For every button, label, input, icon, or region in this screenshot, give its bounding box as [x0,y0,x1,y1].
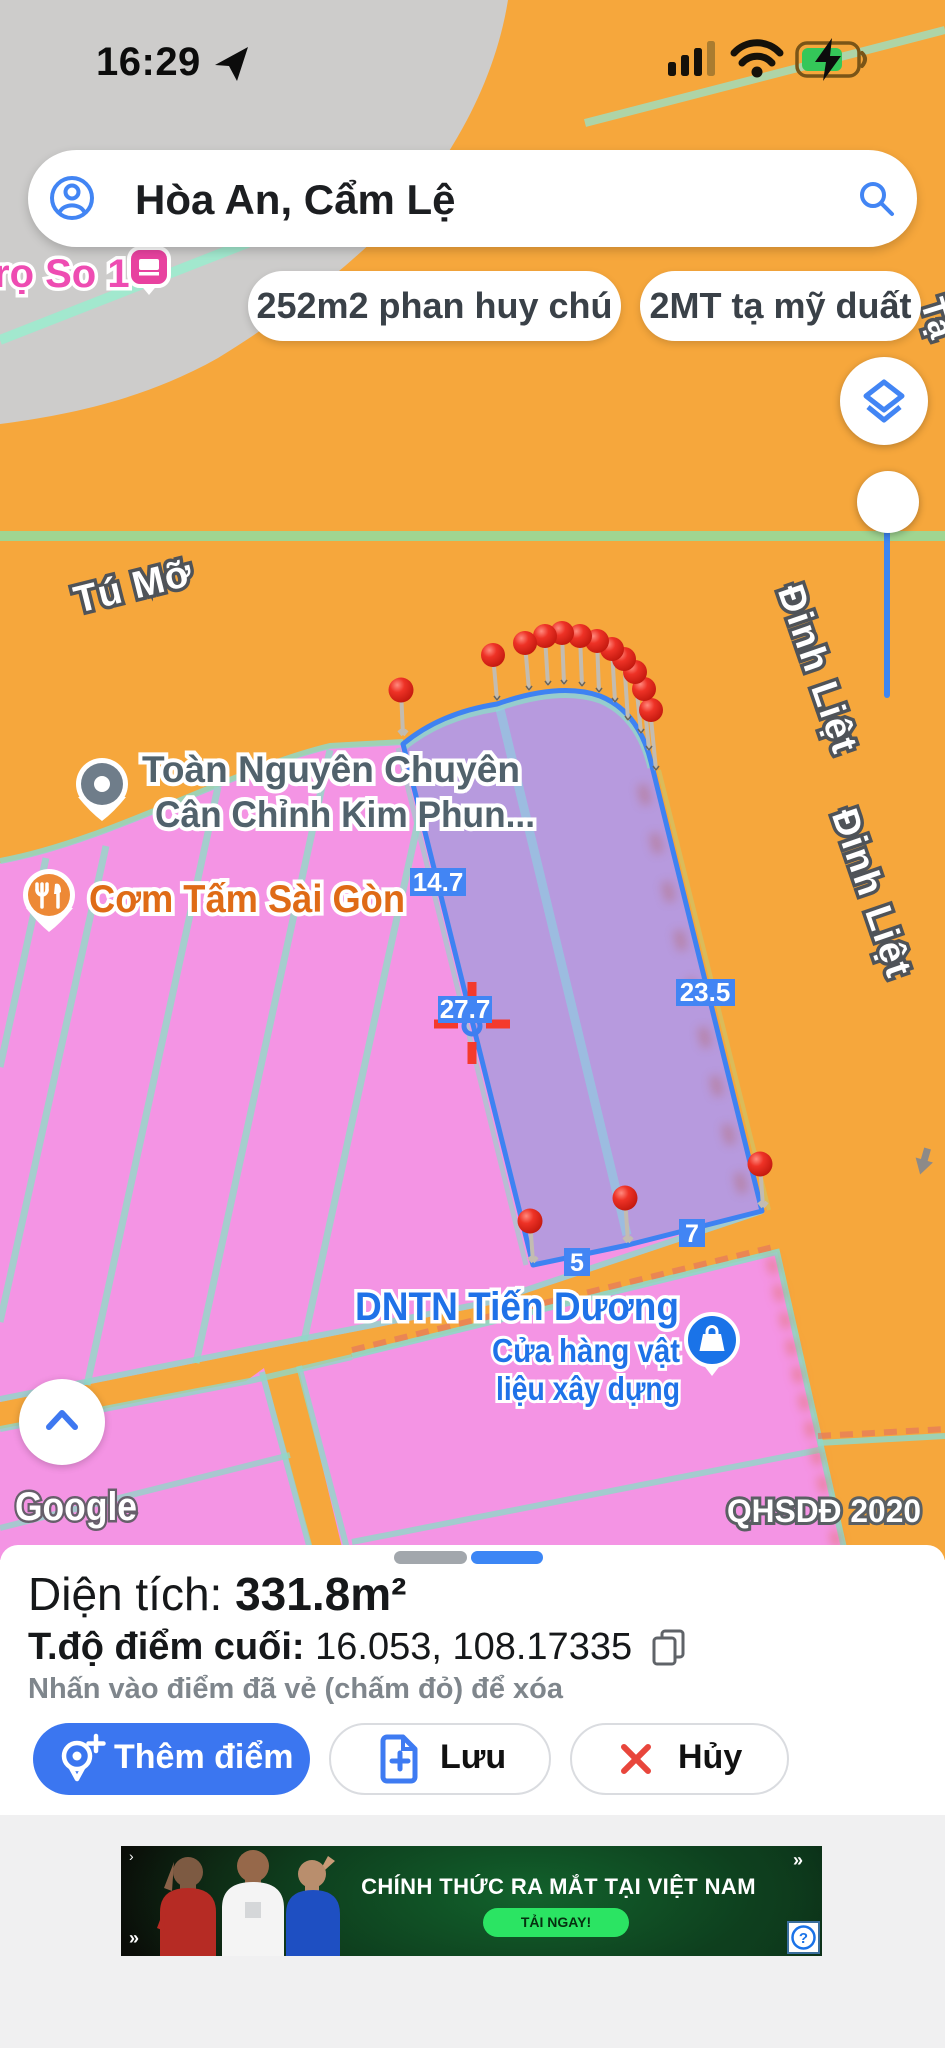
svg-text:Cân Chỉnh Kim Phun...: Cân Chỉnh Kim Phun... [155,794,535,835]
svg-text:Cơm Tấm Sài Gòn: Cơm Tấm Sài Gòn [89,878,405,921]
svg-text:23.5: 23.5 [680,977,731,1007]
svg-text:27.7: 27.7 [440,994,491,1024]
svg-text:7: 7 [685,1220,699,1248]
svg-text:?: ? [799,1930,808,1947]
svg-text:QHSDĐ 2020: QHSDĐ 2020 [727,1493,921,1529]
svg-text:DNTN Tiến Dương: DNTN Tiến Dương [355,1285,679,1329]
svg-text:liệu xây dựng: liệu xây dựng [496,1370,680,1407]
svg-text:5: 5 [570,1249,584,1277]
svg-text:Google: Google [15,1485,137,1529]
svg-text:rọ So 1: rọ So 1 [0,252,130,296]
svg-text:Cửa hàng vật: Cửa hàng vật [492,1332,680,1369]
svg-text:14.7: 14.7 [413,867,464,897]
svg-text:Toàn Nguyên Chuyên: Toàn Nguyên Chuyên [142,749,520,790]
